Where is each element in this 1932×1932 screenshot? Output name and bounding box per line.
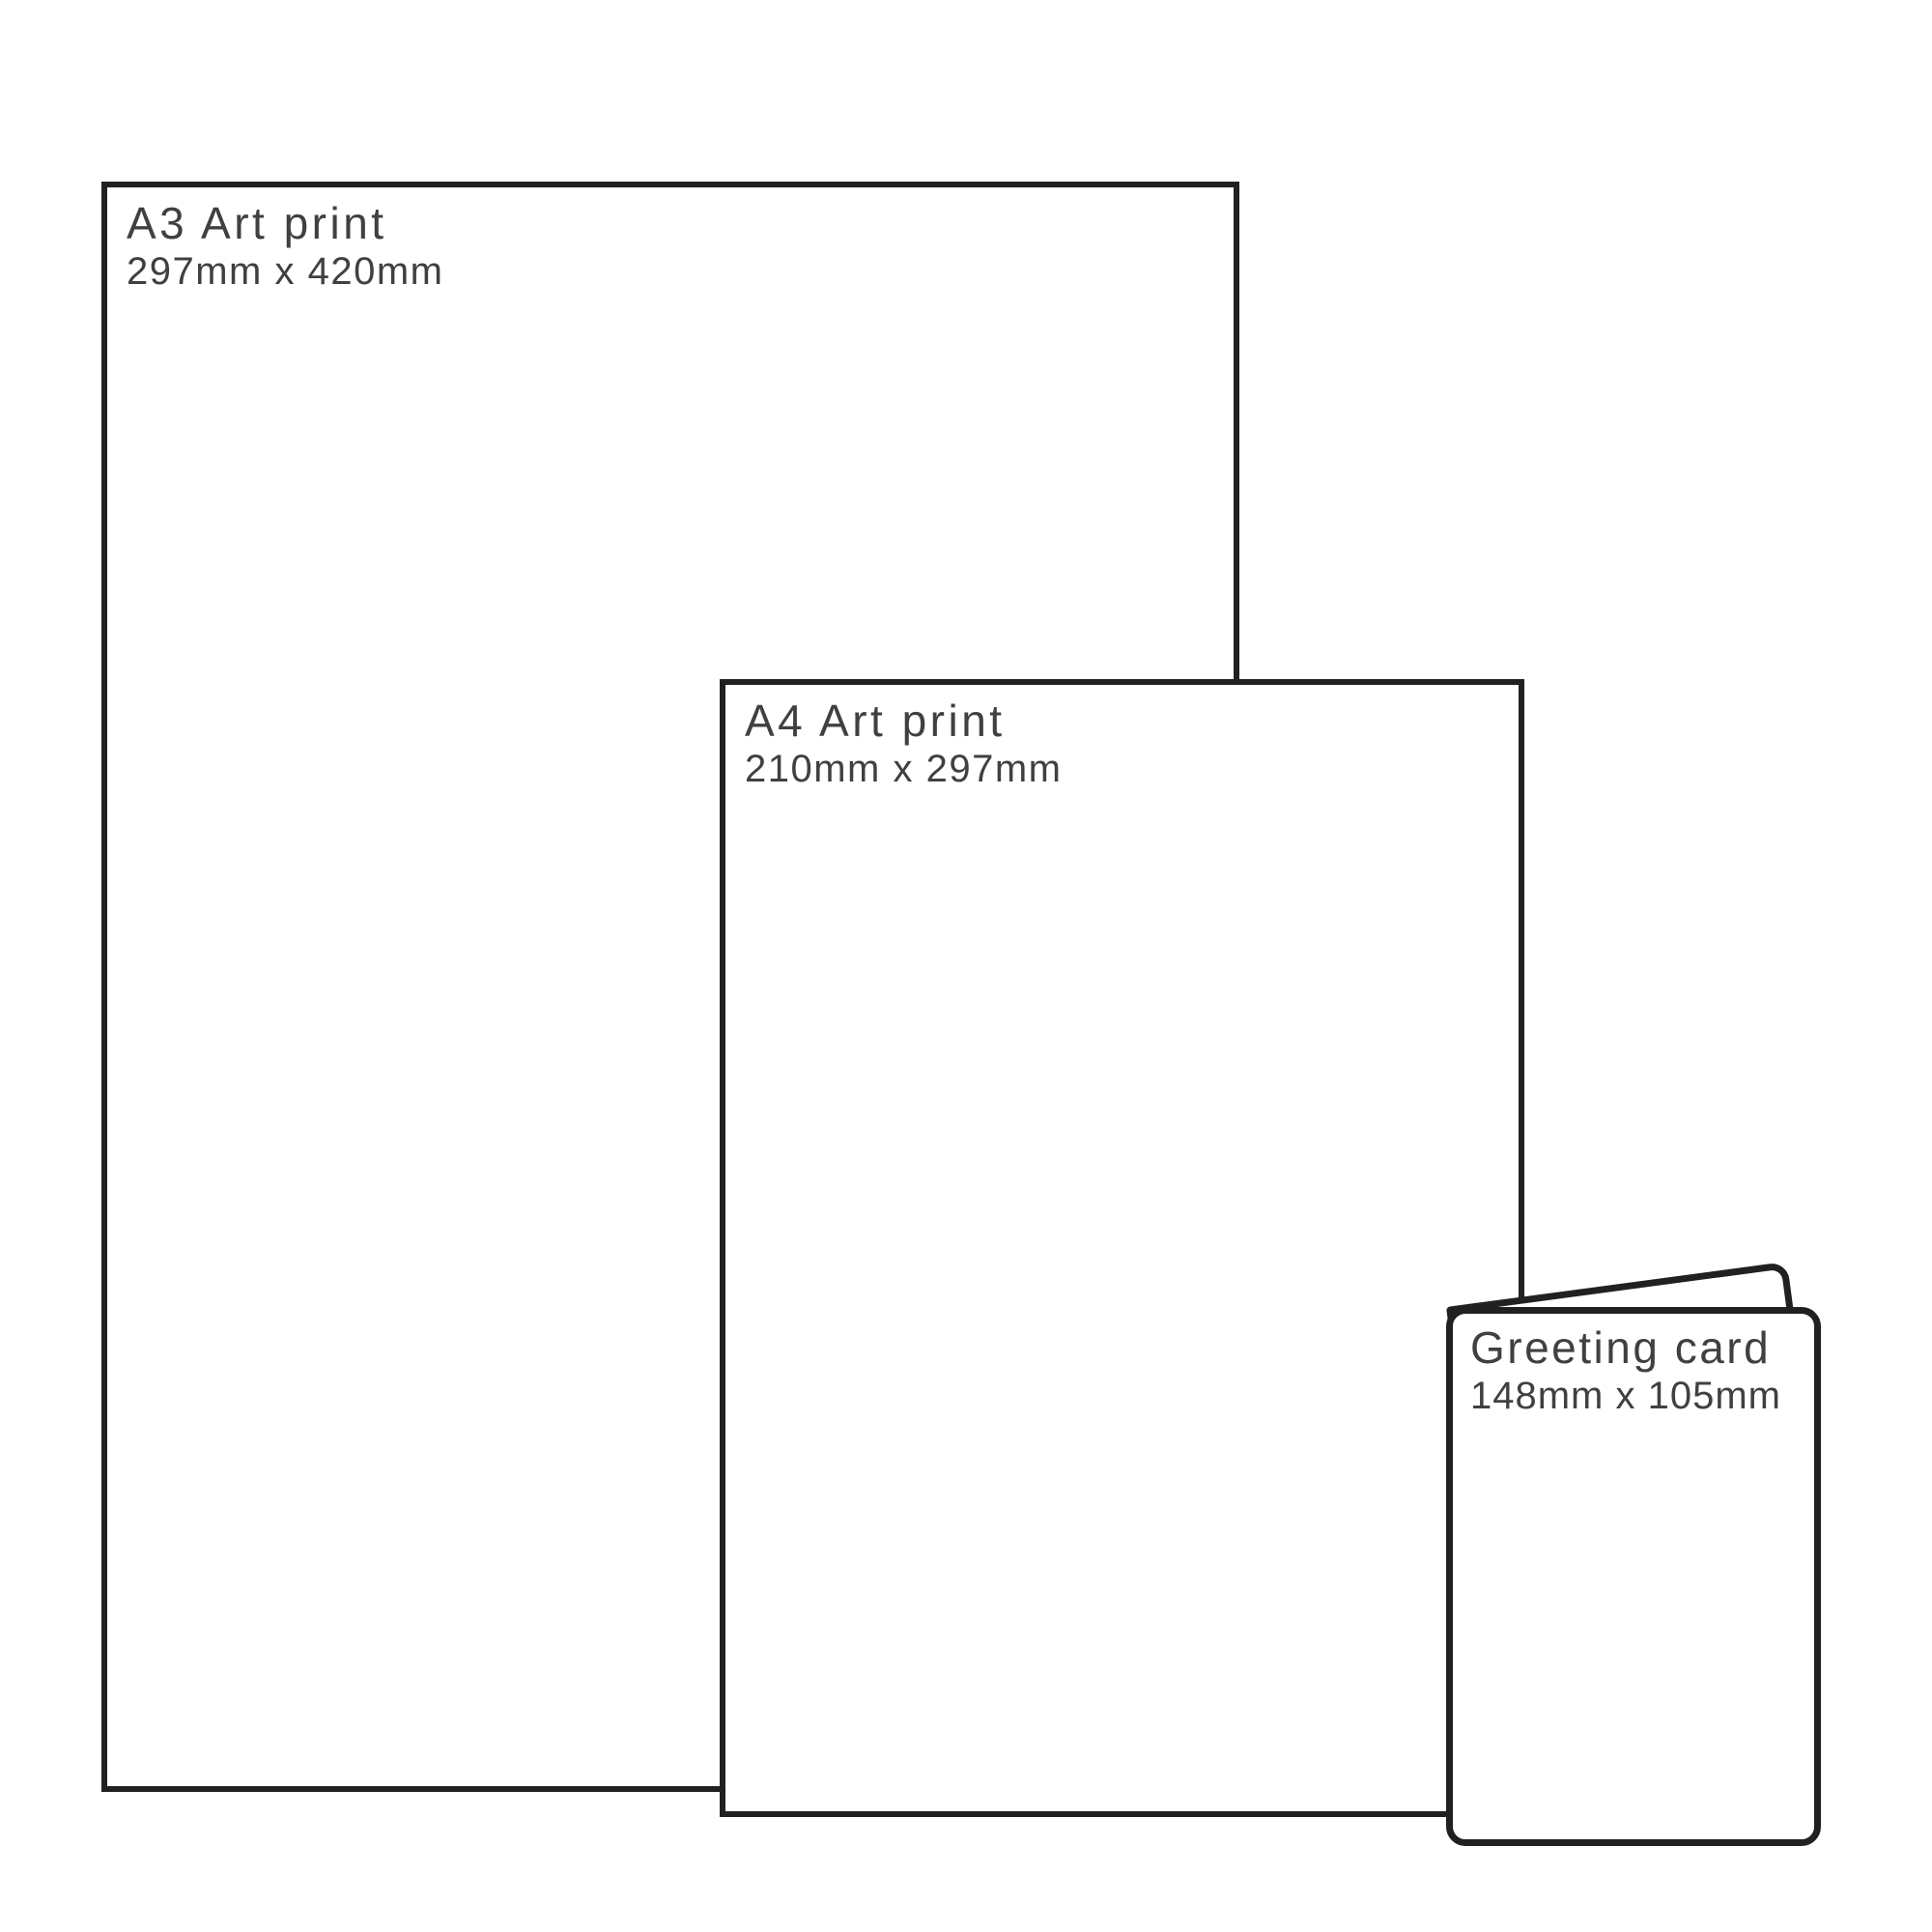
a4-label: A4 Art print 210mm x 297mm (745, 695, 1062, 791)
greeting-card-dimensions: 148mm x 105mm (1470, 1374, 1781, 1418)
a4-title: A4 Art print (745, 695, 1062, 747)
a4-print-outline: A4 Art print 210mm x 297mm (720, 679, 1524, 1817)
a3-dimensions: 297mm x 420mm (127, 249, 443, 294)
greeting-card-label: Greeting card 148mm x 105mm (1470, 1321, 1781, 1418)
a4-dimensions: 210mm x 297mm (745, 747, 1062, 791)
greeting-card-title: Greeting card (1470, 1321, 1781, 1374)
a3-label: A3 Art print 297mm x 420mm (127, 197, 443, 294)
greeting-card-outline: Greeting card 148mm x 105mm (1446, 1307, 1821, 1846)
print-size-comparison-diagram: A3 Art print 297mm x 420mm A4 Art print … (0, 0, 1932, 1932)
a3-title: A3 Art print (127, 197, 443, 249)
